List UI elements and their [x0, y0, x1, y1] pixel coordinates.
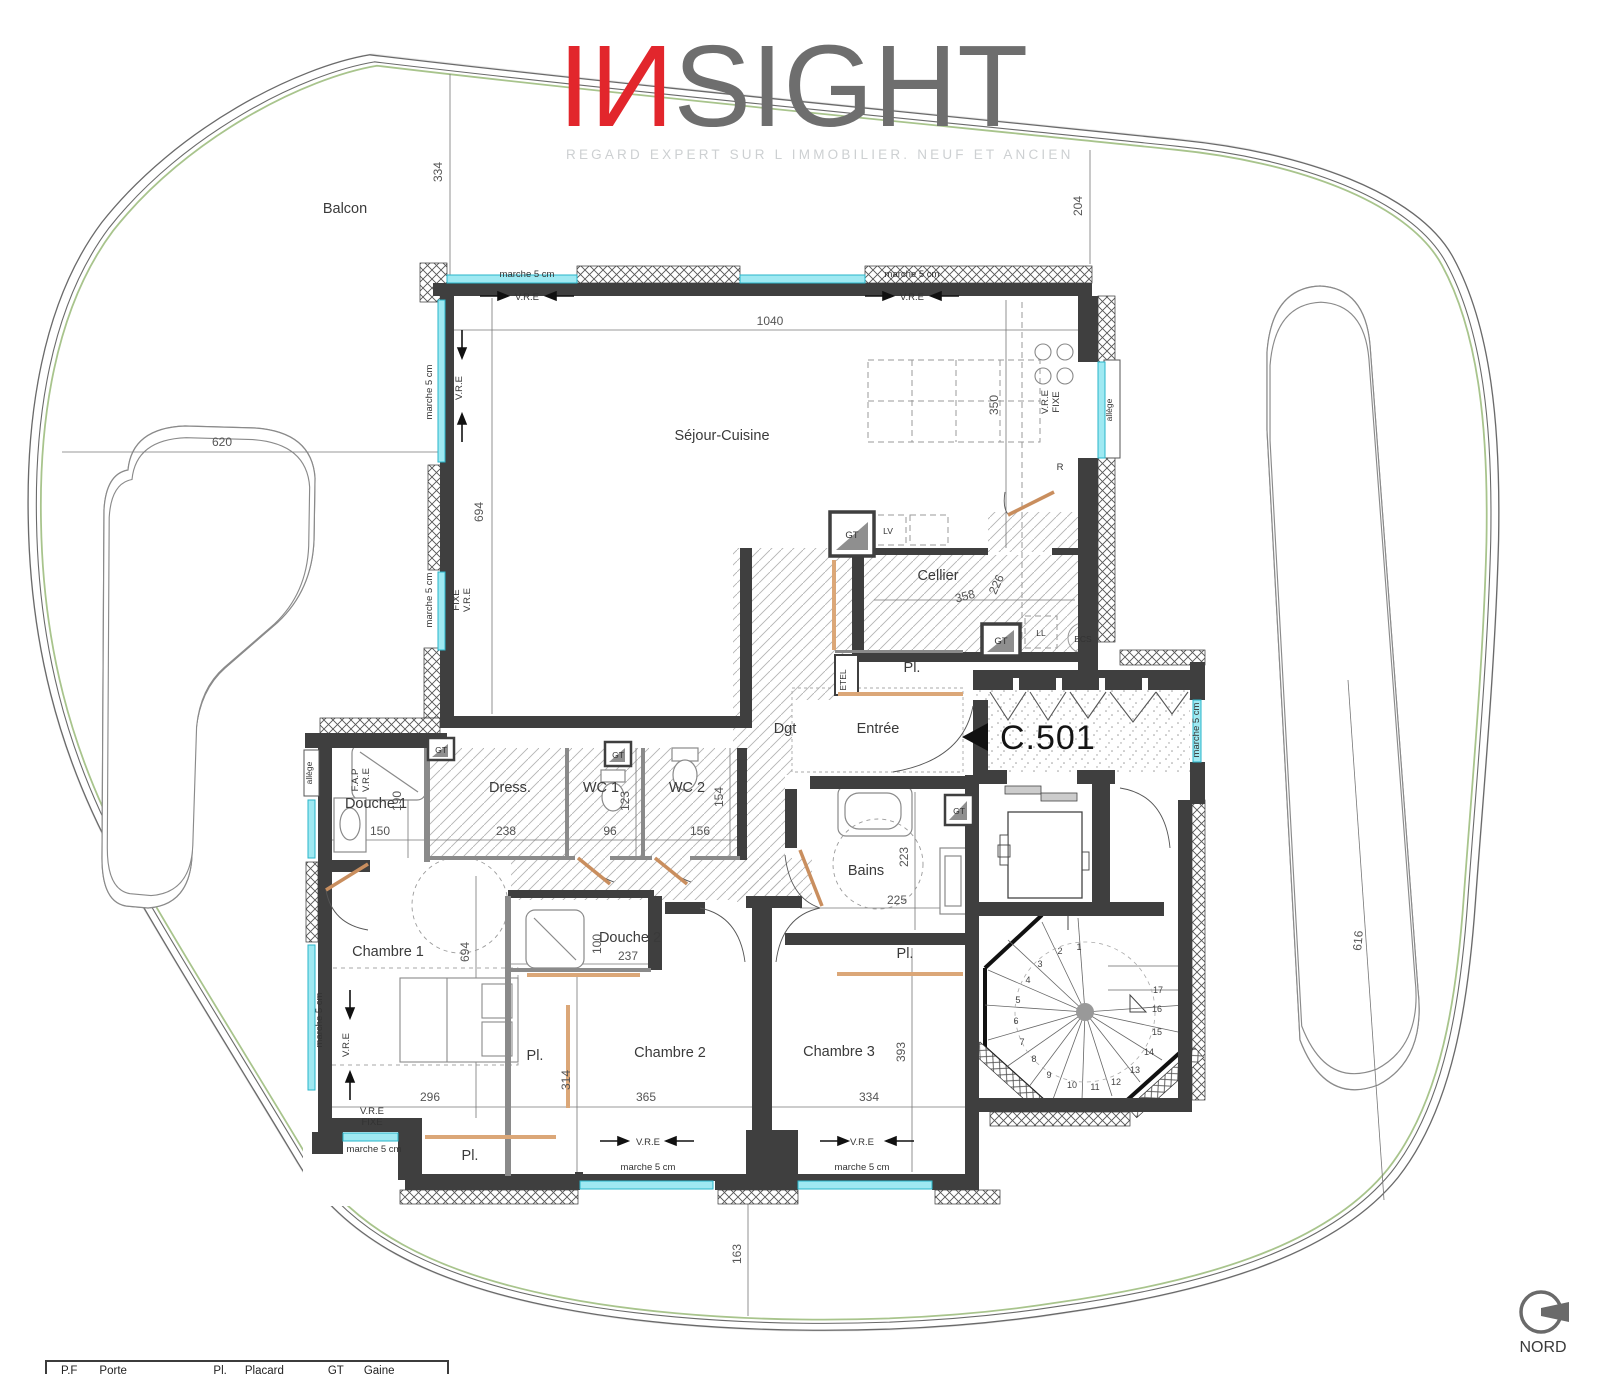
- svg-text:LL: LL: [1036, 628, 1046, 638]
- svg-text:10: 10: [1067, 1080, 1077, 1090]
- svg-text:365: 365: [636, 1090, 656, 1104]
- svg-text:GT: GT: [435, 745, 447, 755]
- legend-abbr-pf: P.F: [61, 1365, 77, 1374]
- svg-text:14: 14: [1144, 1047, 1154, 1057]
- svg-text:allège: allège: [1104, 398, 1114, 421]
- legend-box: P.F Porte fenêtre Pl. Placard GT Gaine t…: [45, 1360, 449, 1374]
- svg-text:F.A.P: F.A.P: [350, 769, 361, 792]
- svg-text:V.R.E: V.R.E: [900, 292, 924, 303]
- svg-text:12: 12: [1111, 1077, 1121, 1087]
- svg-text:V.R.E: V.R.E: [850, 1137, 874, 1148]
- legend-abbr-pl: Pl.: [213, 1365, 226, 1374]
- svg-text:V.R.E: V.R.E: [636, 1137, 660, 1148]
- room-chambre2: Chambre 2: [634, 1045, 706, 1061]
- room-chambre3: Chambre 3: [803, 1044, 875, 1060]
- svg-text:1040: 1040: [757, 314, 784, 328]
- svg-text:FIXE: FIXE: [451, 589, 462, 610]
- svg-text:11: 11: [1090, 1082, 1099, 1092]
- svg-text:GT: GT: [953, 806, 965, 816]
- svg-text:9: 9: [1046, 1070, 1051, 1080]
- room-cellier: Cellier: [917, 568, 958, 584]
- svg-text:16: 16: [1152, 1004, 1162, 1014]
- svg-text:96: 96: [603, 824, 617, 838]
- svg-text:223: 223: [897, 847, 911, 867]
- room-wc1: WC 1: [583, 780, 619, 796]
- svg-text:150: 150: [370, 824, 390, 838]
- closet-ch1: Pl.: [527, 1048, 544, 1064]
- svg-text:350: 350: [987, 395, 1001, 415]
- svg-text:620: 620: [212, 435, 232, 449]
- svg-text:225: 225: [887, 893, 907, 907]
- svg-text:123: 123: [618, 791, 632, 811]
- svg-text:15: 15: [1152, 1027, 1162, 1037]
- svg-text:2: 2: [1057, 946, 1062, 956]
- svg-text:GT: GT: [845, 530, 858, 541]
- elevator: [979, 783, 1092, 903]
- svg-text:FIXE: FIXE: [361, 1117, 382, 1128]
- svg-text:marche 5 cm: marche 5 cm: [500, 269, 555, 280]
- svg-text:1: 1: [1076, 942, 1081, 952]
- room-bains: Bains: [848, 863, 884, 879]
- svg-text:616: 616: [1350, 930, 1366, 951]
- svg-text:marche 5 cm: marche 5 cm: [347, 1144, 402, 1155]
- svg-text:314: 314: [559, 1070, 573, 1090]
- legend-abbr-gt: GT: [328, 1365, 344, 1374]
- svg-text:V.R.E: V.R.E: [515, 292, 539, 303]
- svg-text:296: 296: [420, 1090, 440, 1104]
- svg-text:393: 393: [894, 1042, 908, 1062]
- room-sejour: Séjour-Cuisine: [674, 428, 769, 444]
- svg-text:marche 5 cm: marche 5 cm: [424, 572, 435, 627]
- svg-text:marche 5 cm: marche 5 cm: [835, 1162, 890, 1173]
- svg-text:238: 238: [496, 824, 516, 838]
- room-entree: Entrée: [857, 721, 900, 737]
- room-dgt: Dgt: [774, 721, 797, 737]
- insight-logo: IИSIGHT REGARD EXPERT SUR L IMMOBILIER. …: [558, 28, 1074, 162]
- svg-text:V.R.E: V.R.E: [454, 376, 465, 400]
- svg-text:ECS: ECS: [1074, 634, 1092, 644]
- svg-text:GT: GT: [612, 750, 624, 760]
- svg-text:LV: LV: [883, 526, 893, 536]
- legend-label-gt: Gaine technique: [364, 1365, 447, 1374]
- balcony-label: Balcon: [323, 201, 367, 217]
- svg-text:marche 5 cm: marche 5 cm: [314, 992, 325, 1047]
- svg-text:694: 694: [472, 502, 486, 522]
- svg-text:13: 13: [1130, 1065, 1140, 1075]
- svg-text:V.R.E: V.R.E: [361, 768, 372, 792]
- svg-text:ETEL: ETEL: [838, 669, 848, 691]
- svg-text:156: 156: [690, 824, 710, 838]
- svg-text:GT: GT: [994, 636, 1007, 647]
- svg-text:237: 237: [618, 949, 638, 963]
- svg-text:694: 694: [458, 942, 472, 962]
- svg-text:allège: allège: [304, 761, 314, 784]
- svg-text:V.R.E: V.R.E: [1040, 390, 1051, 414]
- svg-text:R: R: [1057, 462, 1064, 473]
- svg-text:V.R.E: V.R.E: [462, 588, 473, 612]
- logo-wordmark: IИSIGHT: [558, 28, 1074, 144]
- svg-text:8: 8: [1031, 1054, 1036, 1064]
- north-compass: NORD: [1519, 1292, 1569, 1356]
- legend-label-pl: Placard: [245, 1365, 284, 1374]
- north-label: NORD: [1519, 1339, 1566, 1356]
- svg-text:154: 154: [712, 787, 726, 807]
- svg-text:marche 5 cm: marche 5 cm: [1191, 702, 1202, 757]
- closet-bottom: Pl.: [462, 1148, 479, 1164]
- floor-plan-drawing: Balcon Séjour-Cuisine Cellier Entrée Dgt…: [0, 0, 1600, 1374]
- svg-text:163: 163: [730, 1244, 744, 1264]
- svg-text:marche 5 cm: marche 5 cm: [621, 1162, 676, 1173]
- svg-text:4: 4: [1025, 975, 1030, 985]
- svg-text:190: 190: [390, 791, 404, 811]
- svg-text:FIXE: FIXE: [1051, 391, 1062, 412]
- svg-text:334: 334: [859, 1090, 879, 1104]
- svg-text:5: 5: [1015, 995, 1020, 1005]
- svg-text:7: 7: [1019, 1037, 1024, 1047]
- room-douche2: Douche 2: [599, 930, 661, 946]
- logo-tagline: REGARD EXPERT SUR L IMMOBILIER. NEUF ET …: [566, 148, 1074, 162]
- room-dressing: Dress.: [489, 780, 531, 796]
- room-chambre1: Chambre 1: [352, 944, 424, 960]
- legend-label-pf: Porte fenêtre: [99, 1365, 165, 1374]
- closet-bains: Pl.: [897, 946, 914, 962]
- unit-number: C.501: [1000, 719, 1096, 757]
- floor-plan-page: Balcon Séjour-Cuisine Cellier Entrée Dgt…: [0, 0, 1600, 1374]
- svg-text:marche 5 cm: marche 5 cm: [885, 269, 940, 280]
- svg-text:marche 5 cm: marche 5 cm: [424, 364, 435, 419]
- svg-text:3: 3: [1037, 959, 1042, 969]
- room-wc2: WC 2: [669, 780, 705, 796]
- svg-text:V.R.E: V.R.E: [341, 1033, 352, 1057]
- svg-text:100: 100: [590, 934, 604, 954]
- svg-text:6: 6: [1013, 1016, 1018, 1026]
- svg-text:334: 334: [431, 162, 445, 182]
- closet-entree: Pl.: [904, 660, 921, 676]
- svg-text:17: 17: [1153, 985, 1163, 995]
- svg-text:204: 204: [1071, 196, 1085, 216]
- svg-text:V.R.E: V.R.E: [360, 1106, 384, 1117]
